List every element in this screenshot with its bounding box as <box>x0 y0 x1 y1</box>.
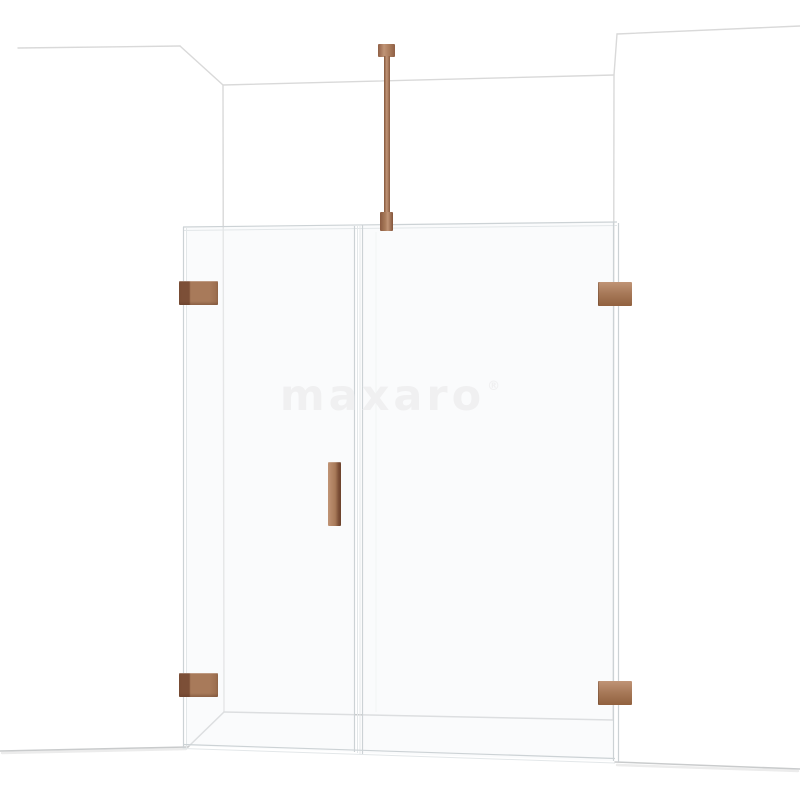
shower-enclosure-product-image: maxaro® <box>0 0 800 800</box>
door-hinge-bottom <box>179 673 218 697</box>
door-hinge-top <box>179 281 218 305</box>
ceiling-stabilizer-bar <box>384 56 390 213</box>
panel-wall-bracket-bottom <box>598 681 632 705</box>
brand-watermark: maxaro® <box>240 368 540 424</box>
glass-fixed-panel <box>362 222 613 761</box>
back-wall-ceiling-edge <box>223 75 614 85</box>
stabilizer-glass-clamp <box>380 212 393 231</box>
registered-trademark-icon: ® <box>487 380 500 393</box>
door-handle <box>328 462 341 526</box>
glass-panels <box>183 222 619 763</box>
panel-wall-bracket-top <box>598 282 632 306</box>
brand-watermark-text: maxaro <box>280 375 485 418</box>
left-wall-fold-edge <box>180 46 223 85</box>
left-wall-top-edge <box>18 46 180 48</box>
right-wall-top-edge <box>617 26 800 34</box>
